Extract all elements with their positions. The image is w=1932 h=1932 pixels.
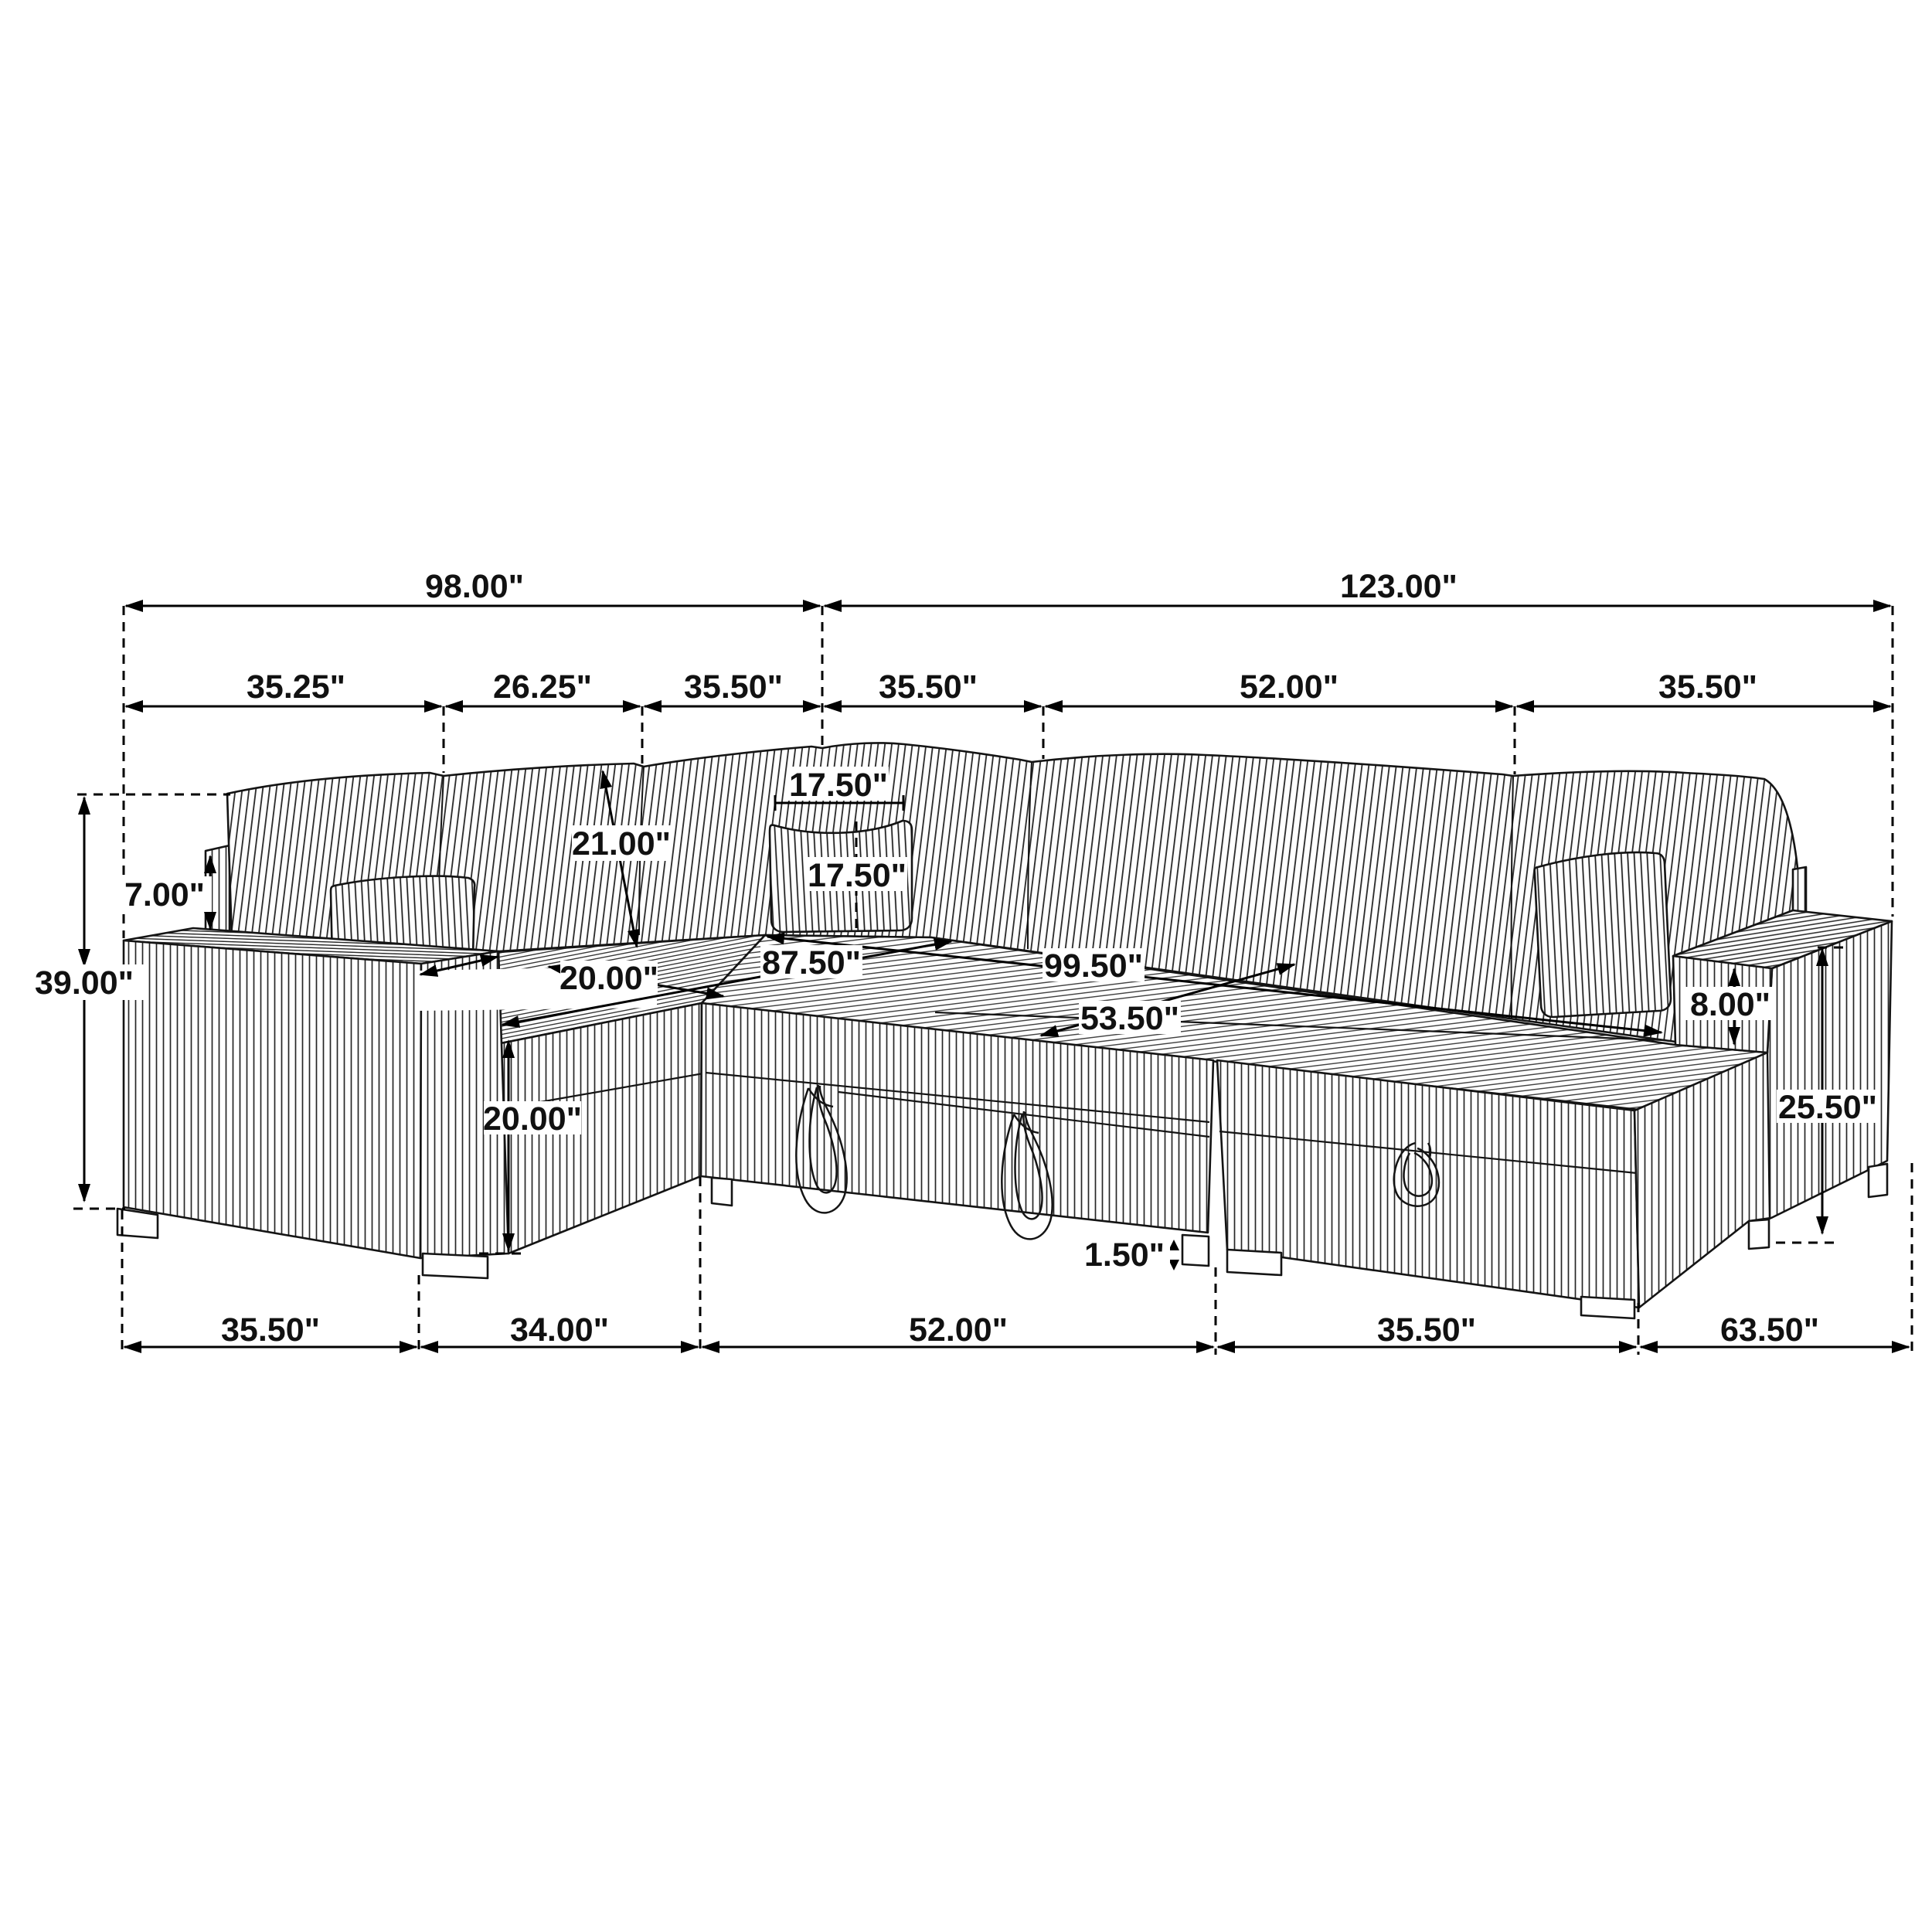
svg-text:39.00": 39.00" bbox=[35, 964, 134, 1002]
svg-text:26.25": 26.25" bbox=[493, 668, 592, 706]
svg-text:8.00": 8.00" bbox=[1690, 986, 1770, 1023]
svg-text:34.00": 34.00" bbox=[510, 1311, 609, 1349]
svg-text:35.25": 35.25" bbox=[247, 668, 345, 706]
svg-text:35.50": 35.50" bbox=[684, 668, 783, 706]
svg-text:53.50": 53.50" bbox=[1080, 1000, 1179, 1037]
svg-text:35.50": 35.50" bbox=[221, 1311, 320, 1349]
svg-text:17.50": 17.50" bbox=[789, 767, 888, 804]
svg-text:35.50": 35.50" bbox=[1658, 668, 1757, 706]
svg-text:98.00": 98.00" bbox=[425, 568, 524, 605]
svg-text:63.50": 63.50" bbox=[1720, 1311, 1819, 1349]
svg-text:7.00": 7.00" bbox=[124, 876, 205, 913]
svg-text:21.00": 21.00" bbox=[572, 825, 671, 862]
svg-text:35.50": 35.50" bbox=[879, 668, 978, 706]
svg-text:52.00": 52.00" bbox=[909, 1311, 1008, 1349]
svg-text:25.50": 25.50" bbox=[1778, 1089, 1877, 1126]
svg-text:1.50": 1.50" bbox=[1084, 1236, 1165, 1274]
svg-text:99.50": 99.50" bbox=[1044, 947, 1143, 985]
svg-text:123.00": 123.00" bbox=[1340, 568, 1458, 605]
svg-text:35.50": 35.50" bbox=[1377, 1311, 1476, 1349]
svg-text:87.50": 87.50" bbox=[762, 944, 861, 981]
svg-text:52.00": 52.00" bbox=[1240, 668, 1338, 706]
svg-text:20.00": 20.00" bbox=[560, 960, 658, 997]
svg-text:20.00": 20.00" bbox=[483, 1100, 582, 1138]
svg-text:17.50": 17.50" bbox=[808, 857, 906, 894]
